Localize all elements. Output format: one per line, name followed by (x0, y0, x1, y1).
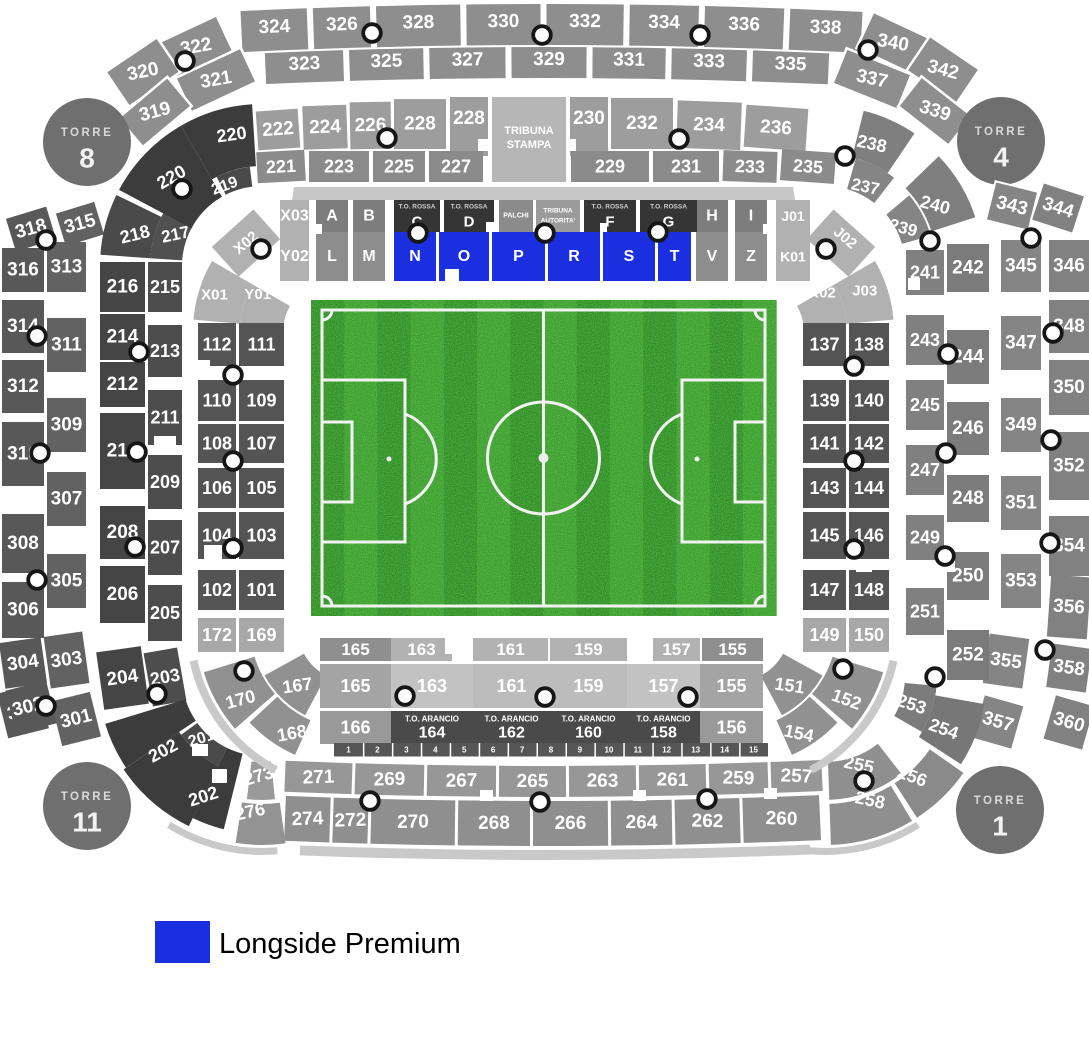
svg-text:323: 323 (288, 53, 320, 75)
svg-text:242: 242 (952, 258, 984, 279)
svg-text:308: 308 (7, 533, 39, 554)
svg-text:X03: X03 (280, 208, 309, 225)
svg-text:K01: K01 (780, 249, 806, 265)
svg-text:211: 211 (150, 408, 179, 428)
svg-text:4: 4 (433, 746, 438, 755)
svg-text:304: 304 (6, 650, 41, 675)
svg-text:204: 204 (105, 665, 140, 690)
svg-text:T.O. ROSSA: T.O. ROSSA (451, 204, 488, 211)
svg-text:165: 165 (340, 676, 370, 696)
svg-text:247: 247 (910, 460, 940, 480)
svg-text:K02: K02 (808, 285, 836, 302)
svg-text:274: 274 (291, 808, 324, 830)
svg-text:252: 252 (952, 645, 984, 666)
svg-text:155: 155 (718, 640, 746, 659)
svg-text:102: 102 (202, 580, 232, 600)
svg-text:X01: X01 (201, 287, 228, 304)
svg-text:166: 166 (340, 718, 370, 738)
svg-text:327: 327 (452, 49, 484, 70)
svg-text:352: 352 (1053, 456, 1085, 477)
svg-text:149: 149 (809, 625, 839, 645)
svg-text:353: 353 (1005, 571, 1037, 592)
svg-text:157: 157 (648, 676, 678, 696)
svg-text:S: S (624, 248, 635, 265)
svg-text:7: 7 (520, 746, 525, 755)
svg-text:12: 12 (662, 746, 671, 755)
svg-text:2: 2 (375, 746, 380, 755)
svg-text:159: 159 (573, 676, 603, 696)
svg-text:311: 311 (51, 335, 82, 356)
svg-text:231: 231 (671, 157, 701, 177)
svg-text:163: 163 (407, 640, 435, 659)
svg-text:8: 8 (549, 746, 554, 755)
svg-text:215: 215 (150, 277, 180, 297)
svg-text:307: 307 (51, 489, 83, 510)
svg-text:251: 251 (910, 602, 940, 622)
svg-text:230: 230 (573, 108, 605, 129)
svg-text:3: 3 (404, 746, 409, 755)
svg-text:Y02: Y02 (280, 248, 309, 265)
svg-text:TORRE: TORRE (974, 795, 1027, 807)
svg-text:303: 303 (49, 647, 83, 672)
svg-text:326: 326 (326, 14, 358, 36)
svg-text:207: 207 (150, 538, 180, 558)
svg-text:157: 157 (662, 640, 690, 659)
svg-text:1: 1 (992, 811, 1008, 842)
svg-text:I: I (749, 208, 753, 225)
svg-text:147: 147 (809, 580, 839, 600)
svg-text:223: 223 (324, 157, 354, 177)
svg-text:172: 172 (202, 625, 232, 645)
svg-text:107: 107 (246, 434, 276, 454)
svg-text:T.O. ARANCIO: T.O. ARANCIO (485, 715, 539, 724)
svg-text:144: 144 (854, 478, 884, 498)
svg-text:263: 263 (587, 771, 619, 792)
svg-text:6: 6 (491, 746, 496, 755)
svg-text:5: 5 (462, 746, 467, 755)
svg-text:268: 268 (478, 813, 510, 834)
svg-text:162: 162 (498, 725, 525, 742)
svg-text:15: 15 (749, 746, 758, 755)
svg-text:228: 228 (404, 114, 436, 135)
svg-text:161: 161 (496, 676, 526, 696)
svg-text:260: 260 (765, 808, 797, 830)
svg-text:110: 110 (202, 391, 231, 411)
svg-text:338: 338 (809, 17, 842, 39)
svg-text:358: 358 (1052, 655, 1086, 680)
svg-text:206: 206 (107, 584, 139, 605)
svg-text:234: 234 (693, 114, 726, 136)
svg-text:229: 229 (595, 157, 625, 177)
svg-text:H: H (706, 208, 718, 225)
svg-text:213: 213 (150, 341, 180, 361)
svg-text:103: 103 (246, 526, 276, 546)
svg-text:T.O. ROSSA: T.O. ROSSA (650, 204, 687, 211)
svg-text:227: 227 (441, 157, 471, 177)
svg-text:269: 269 (373, 769, 405, 791)
svg-text:164: 164 (419, 725, 446, 742)
svg-text:313: 313 (51, 257, 83, 278)
svg-text:232: 232 (626, 113, 658, 134)
svg-text:13: 13 (691, 746, 700, 755)
svg-text:111: 111 (247, 335, 275, 355)
svg-text:222: 222 (261, 118, 294, 141)
svg-text:TORRE: TORRE (61, 791, 114, 803)
svg-text:305: 305 (51, 571, 83, 592)
svg-text:Z: Z (746, 248, 756, 265)
svg-text:333: 333 (693, 51, 725, 73)
svg-text:309: 309 (51, 415, 83, 436)
svg-text:332: 332 (569, 11, 601, 32)
svg-text:335: 335 (774, 53, 807, 75)
svg-text:245: 245 (910, 395, 940, 415)
svg-text:163: 163 (417, 676, 447, 696)
svg-text:STAMPA: STAMPA (507, 139, 552, 151)
svg-text:165: 165 (341, 640, 369, 659)
svg-text:325: 325 (370, 51, 403, 73)
svg-text:271: 271 (302, 767, 335, 789)
svg-text:351: 351 (1005, 493, 1037, 514)
svg-text:T.O. ARANCIO: T.O. ARANCIO (405, 715, 459, 724)
svg-text:155: 155 (716, 676, 746, 696)
svg-text:316: 316 (7, 260, 39, 281)
svg-text:350: 350 (1053, 377, 1085, 398)
svg-text:261: 261 (656, 769, 689, 791)
svg-text:329: 329 (533, 49, 565, 70)
svg-text:137: 137 (809, 335, 839, 355)
svg-text:161: 161 (496, 640, 524, 659)
svg-text:1: 1 (346, 746, 351, 755)
svg-text:150: 150 (854, 625, 884, 645)
svg-text:205: 205 (150, 603, 180, 623)
svg-text:P: P (513, 248, 524, 265)
svg-text:257: 257 (780, 765, 813, 787)
svg-text:212: 212 (107, 374, 139, 395)
svg-text:169: 169 (246, 625, 276, 645)
svg-text:267: 267 (446, 770, 478, 791)
svg-text:265: 265 (517, 771, 549, 792)
svg-text:158: 158 (650, 725, 677, 742)
svg-text:140: 140 (854, 391, 884, 411)
svg-text:B: B (363, 208, 375, 225)
svg-text:T.O. ROSSA: T.O. ROSSA (399, 204, 436, 211)
svg-text:334: 334 (648, 12, 681, 34)
svg-text:346: 346 (1053, 256, 1085, 277)
svg-text:145: 145 (809, 526, 839, 546)
svg-text:331: 331 (613, 49, 645, 70)
svg-text:Y01: Y01 (244, 286, 271, 303)
svg-text:345: 345 (1005, 256, 1037, 277)
svg-text:347: 347 (1005, 333, 1037, 354)
svg-text:221: 221 (265, 156, 296, 178)
svg-text:270: 270 (397, 811, 429, 833)
svg-text:220: 220 (215, 123, 248, 147)
svg-text:14: 14 (720, 746, 729, 755)
svg-text:9: 9 (578, 746, 583, 755)
svg-text:142: 142 (854, 434, 884, 454)
svg-text:243: 243 (910, 330, 940, 350)
svg-text:224: 224 (309, 116, 342, 138)
svg-text:TRIBUNA: TRIBUNA (504, 125, 554, 137)
svg-text:139: 139 (809, 391, 839, 411)
svg-text:259: 259 (722, 768, 754, 790)
svg-text:109: 109 (246, 391, 276, 411)
svg-text:336: 336 (728, 14, 760, 36)
svg-text:248: 248 (952, 488, 984, 509)
svg-text:L: L (327, 248, 337, 265)
svg-text:O: O (458, 248, 470, 265)
svg-text:143: 143 (809, 478, 839, 498)
svg-text:A: A (326, 208, 338, 225)
svg-text:328: 328 (402, 12, 434, 34)
svg-text:355: 355 (989, 648, 1024, 673)
svg-text:T: T (670, 248, 680, 265)
svg-text:T.O. ARANCIO: T.O. ARANCIO (562, 715, 616, 724)
svg-text:156: 156 (716, 718, 746, 738)
svg-text:101: 101 (246, 580, 276, 600)
svg-text:246: 246 (952, 418, 984, 439)
svg-text:4: 4 (993, 142, 1009, 173)
svg-text:J01: J01 (781, 208, 805, 224)
svg-text:106: 106 (202, 478, 232, 498)
svg-text:TRIBUNA: TRIBUNA (543, 208, 573, 215)
svg-text:264: 264 (625, 812, 657, 833)
svg-text:262: 262 (691, 811, 723, 833)
svg-text:Longside Premium: Longside Premium (219, 928, 461, 960)
svg-text:228: 228 (453, 108, 485, 129)
svg-text:235: 235 (792, 155, 823, 177)
svg-text:T.O. ROSSA: T.O. ROSSA (592, 204, 629, 211)
svg-text:160: 160 (575, 725, 602, 742)
svg-text:11: 11 (72, 807, 102, 838)
svg-text:151: 151 (773, 674, 806, 698)
svg-text:V: V (707, 248, 718, 265)
svg-text:J03: J03 (852, 283, 877, 300)
svg-text:D: D (464, 214, 475, 231)
svg-text:T.O. ARANCIO: T.O. ARANCIO (637, 715, 691, 724)
svg-text:8: 8 (79, 143, 95, 174)
svg-text:10: 10 (604, 746, 613, 755)
svg-text:266: 266 (555, 813, 587, 834)
svg-text:356: 356 (1052, 595, 1085, 618)
svg-text:330: 330 (488, 11, 520, 32)
svg-text:167: 167 (281, 674, 314, 698)
svg-text:M: M (362, 248, 375, 265)
svg-text:PALCHI: PALCHI (503, 213, 529, 220)
svg-text:R: R (568, 248, 580, 265)
svg-text:250: 250 (952, 566, 984, 587)
svg-text:TORRE: TORRE (975, 126, 1028, 138)
svg-text:272: 272 (334, 810, 366, 832)
svg-text:N: N (409, 248, 421, 265)
svg-text:225: 225 (384, 157, 414, 177)
svg-text:105: 105 (246, 478, 276, 498)
svg-text:11: 11 (634, 746, 643, 755)
svg-text:TORRE: TORRE (61, 127, 114, 139)
svg-text:233: 233 (735, 156, 766, 177)
svg-text:249: 249 (910, 528, 940, 548)
svg-text:148: 148 (854, 580, 884, 600)
svg-text:108: 108 (202, 434, 232, 454)
svg-text:141: 141 (809, 434, 839, 454)
svg-text:349: 349 (1005, 415, 1037, 436)
svg-text:312: 312 (7, 376, 39, 397)
svg-text:306: 306 (7, 600, 39, 621)
svg-text:112: 112 (202, 335, 231, 355)
svg-text:324: 324 (258, 16, 291, 38)
svg-text:236: 236 (759, 116, 792, 139)
svg-text:138: 138 (854, 335, 884, 355)
svg-text:159: 159 (574, 640, 602, 659)
svg-text:216: 216 (107, 277, 139, 298)
svg-text:209: 209 (150, 472, 180, 492)
